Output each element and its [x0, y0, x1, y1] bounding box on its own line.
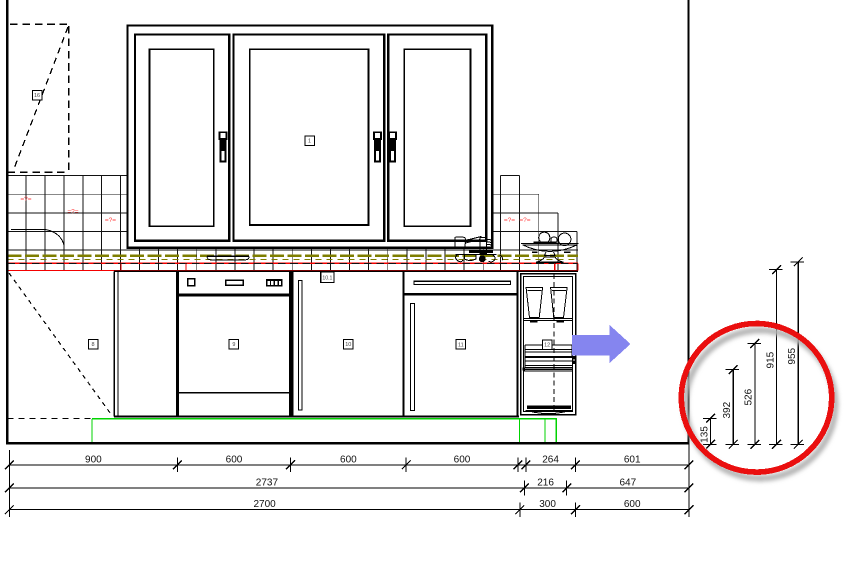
svg-text:16: 16 — [34, 93, 40, 99]
svg-text:300: 300 — [539, 499, 556, 510]
svg-text:=?=: =?= — [105, 217, 116, 224]
svg-text:=?=: =?= — [504, 217, 515, 224]
svg-text:1: 1 — [308, 139, 311, 145]
svg-text:=?=: =?= — [519, 217, 530, 224]
svg-text:=?=: =?= — [20, 196, 31, 203]
svg-text:12: 12 — [544, 343, 550, 349]
svg-text:600: 600 — [624, 499, 641, 510]
svg-text:900: 900 — [85, 454, 102, 465]
svg-text:955: 955 — [787, 347, 798, 364]
svg-text:11: 11 — [458, 342, 464, 348]
svg-text:2700: 2700 — [253, 499, 276, 510]
svg-text:392: 392 — [722, 401, 733, 418]
svg-text:601: 601 — [624, 454, 641, 465]
svg-text:8: 8 — [91, 342, 94, 348]
svg-text:264: 264 — [542, 454, 559, 465]
svg-text:135: 135 — [699, 426, 710, 443]
svg-text:600: 600 — [340, 454, 357, 465]
svg-text:=?=: =?= — [67, 209, 78, 216]
svg-text:915: 915 — [765, 351, 776, 368]
svg-text:9: 9 — [232, 342, 235, 348]
svg-text:600: 600 — [454, 454, 471, 465]
svg-text:2737: 2737 — [256, 477, 279, 488]
svg-text:647: 647 — [619, 477, 636, 488]
svg-text:600: 600 — [226, 454, 243, 465]
svg-text:526: 526 — [744, 388, 755, 405]
svg-text:10: 10 — [345, 342, 351, 348]
svg-text:216: 216 — [537, 477, 554, 488]
svg-text:10.1: 10.1 — [322, 276, 332, 282]
